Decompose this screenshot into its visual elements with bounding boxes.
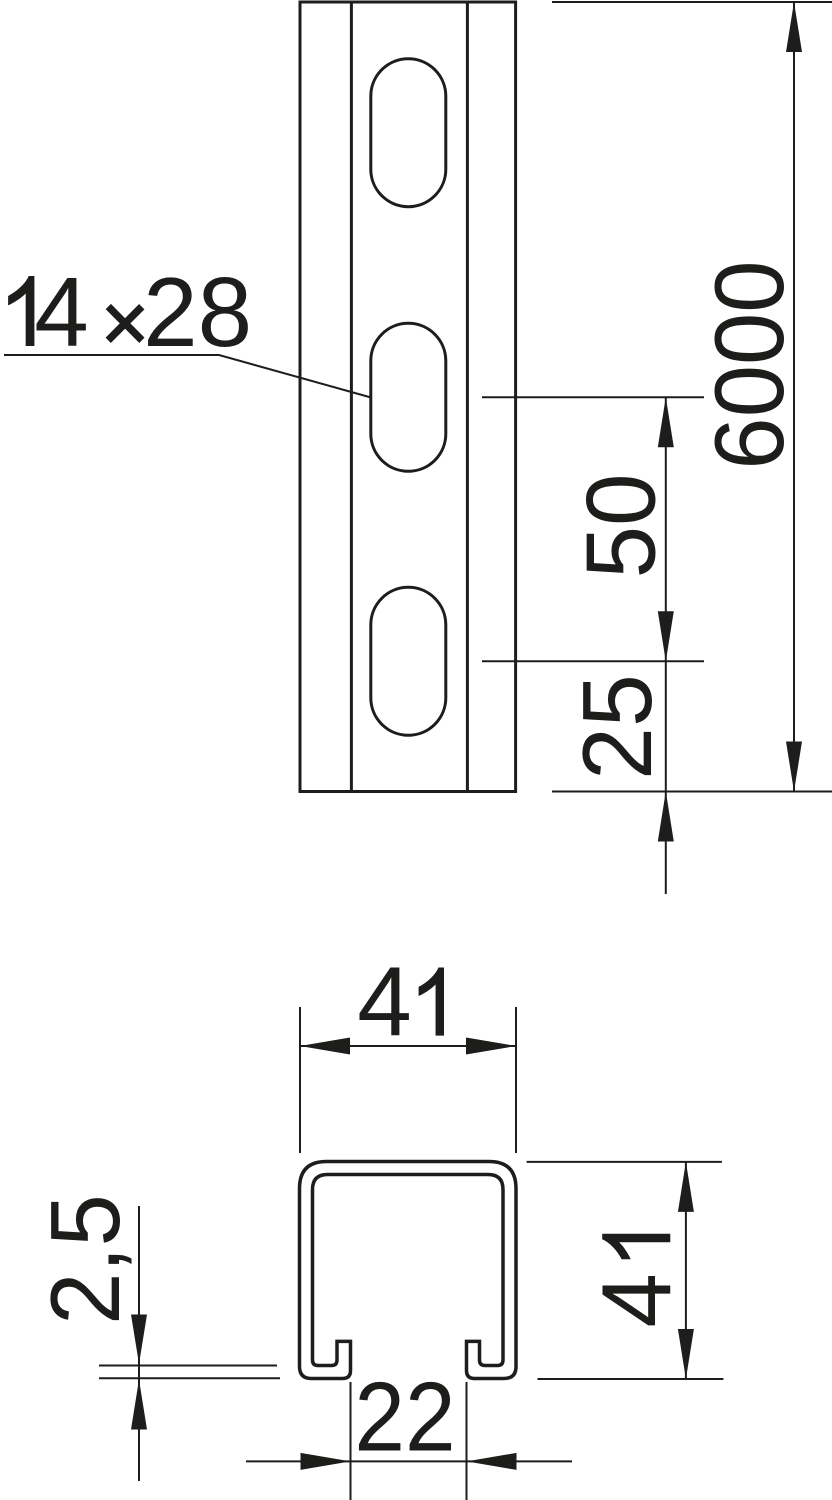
svg-text:4: 4 bbox=[357, 947, 412, 1057]
svg-text:4: 4 bbox=[581, 1273, 691, 1328]
svg-text:2,5: 2,5 bbox=[31, 1194, 140, 1325]
svg-text:6000: 6000 bbox=[695, 260, 804, 469]
svg-text:25: 25 bbox=[564, 674, 673, 780]
svg-text:28: 28 bbox=[143, 257, 252, 367]
svg-text:22: 22 bbox=[354, 1363, 455, 1473]
svg-text:×: × bbox=[101, 277, 149, 369]
svg-text:4: 4 bbox=[34, 257, 89, 367]
svg-text:50: 50 bbox=[567, 473, 676, 578]
